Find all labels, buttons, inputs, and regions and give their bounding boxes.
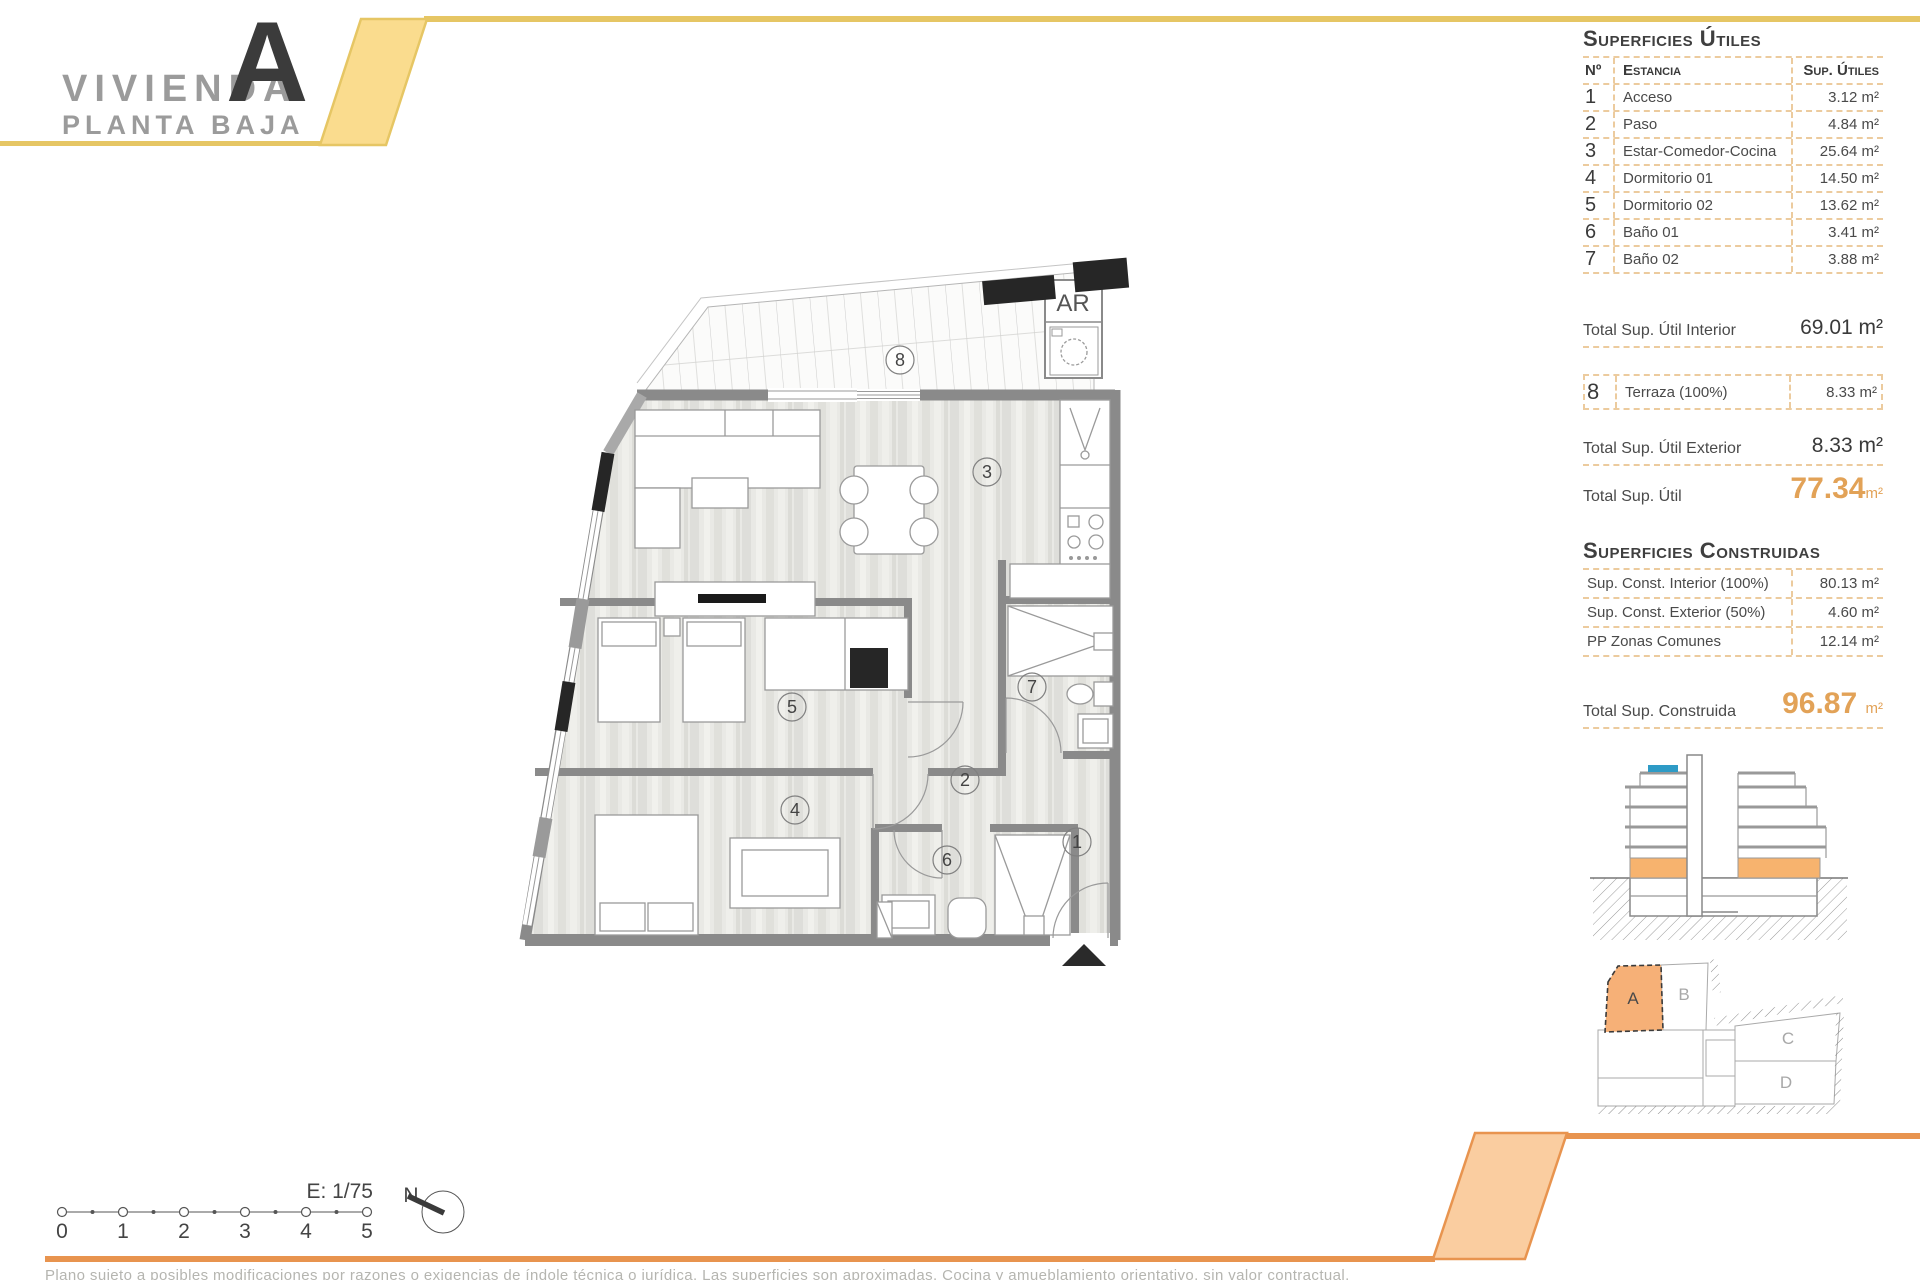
- row-room: Acceso: [1613, 85, 1791, 110]
- row-no: 8: [1585, 379, 1615, 405]
- row-area: 13.62 m²: [1791, 193, 1883, 218]
- row-room: Dormitorio 01: [1613, 166, 1791, 191]
- chair: [910, 476, 938, 504]
- sofa: [635, 410, 820, 488]
- total-construida-label: Total Sup. Construida: [1583, 703, 1736, 721]
- unit-d-label: D: [1780, 1073, 1792, 1092]
- chair: [840, 518, 868, 546]
- row-value: 12.14 m²: [1791, 628, 1883, 655]
- row-room: Paso: [1613, 112, 1791, 137]
- coffee-table: [692, 478, 748, 508]
- floor-plan: AR: [430, 250, 1140, 970]
- total-util-unit: m²: [1866, 485, 1884, 502]
- terrace-row: 8 Terraza (100%) 8.33 m²: [1583, 374, 1883, 410]
- superficies-construidas-table: Sup. Const. Interior (100%) 80.13 m² Sup…: [1583, 568, 1883, 657]
- row-no: 2: [1583, 113, 1613, 136]
- hatch-strip: [1598, 1106, 1836, 1114]
- row-label: Sup. Const. Interior (100%): [1583, 575, 1791, 592]
- sheet-subtitle: PLANTA BAJA: [62, 110, 305, 141]
- counter-nook: [1010, 564, 1110, 598]
- right-building: [1738, 773, 1826, 878]
- superficies-utiles-title: Superficies Útiles: [1583, 26, 1883, 52]
- total-interior-label: Total Sup. Útil Interior: [1583, 322, 1736, 340]
- table-row: 1 Acceso 3.12 m²: [1583, 85, 1883, 112]
- footer-right-rule: [1565, 1133, 1920, 1139]
- total-construida: Total Sup. Construida 96.87 m²: [1583, 687, 1883, 729]
- footer-parallelogram: [1433, 1133, 1567, 1259]
- table-row: 6 Baño 01 3.41 m²: [1583, 220, 1883, 247]
- row-room: Baño 01: [1613, 220, 1791, 245]
- total-exterior-value: 8.33 m²: [1812, 434, 1883, 458]
- washing-machine-icon: [1050, 327, 1098, 375]
- room-label-acceso: 1: [1072, 832, 1082, 852]
- table-row: PP Zonas Comunes 12.14 m²: [1583, 628, 1883, 655]
- hatch-strip: [1710, 959, 1721, 996]
- row-area: 3.88 m²: [1791, 247, 1883, 272]
- row-label: Sup. Const. Exterior (50%): [1583, 604, 1791, 621]
- building-section-diagram: [1590, 735, 1850, 955]
- row-room: Baño 02: [1613, 247, 1791, 272]
- highlighted-floor: [1630, 858, 1687, 878]
- total-construida-value: 96.87: [1782, 687, 1857, 720]
- row-area: 3.41 m²: [1791, 220, 1883, 245]
- row-label: PP Zonas Comunes: [1583, 633, 1791, 650]
- row-no: 1: [1583, 86, 1613, 109]
- table-row: 7 Baño 02 3.88 m²: [1583, 247, 1883, 272]
- header-bottom-rule: [0, 141, 322, 146]
- highlighted-floor: [1738, 858, 1820, 878]
- total-exterior: Total Sup. Útil Exterior 8.33 m²: [1583, 434, 1883, 466]
- total-util: Total Sup. Útil 77.34m²: [1583, 472, 1883, 512]
- room-label-bano02: 7: [1027, 677, 1037, 697]
- row-room: Dormitorio 02: [1613, 193, 1791, 218]
- unit-letter: A: [226, 6, 308, 120]
- desk-chair: [850, 648, 888, 688]
- row-value: 4.60 m²: [1791, 599, 1883, 626]
- chair: [910, 518, 938, 546]
- row-value: 80.13 m²: [1791, 570, 1883, 597]
- table-row: Sup. Const. Interior (100%) 80.13 m²: [1583, 570, 1883, 599]
- room-label-estar: 3: [982, 462, 992, 482]
- superficies-construidas-title: Superficies Construidas: [1583, 538, 1883, 564]
- left-building: [1625, 765, 1687, 878]
- col-estancia: Estancia: [1613, 58, 1791, 83]
- footer-band-graphic: [0, 1125, 1920, 1280]
- chair: [840, 476, 868, 504]
- basement: [1630, 878, 1817, 916]
- row-area: 25.64 m²: [1791, 139, 1883, 164]
- ar-label: AR: [1056, 290, 1089, 317]
- room-label-dorm01: 4: [790, 800, 800, 820]
- table-row: 2 Paso 4.84 m²: [1583, 112, 1883, 139]
- table-row: 4 Dormitorio 01 14.50 m²: [1583, 166, 1883, 193]
- total-construida-unit: m²: [1866, 700, 1884, 717]
- tv: [698, 594, 766, 603]
- total-exterior-label: Total Sup. Útil Exterior: [1583, 440, 1741, 458]
- total-interior: Total Sup. Útil Interior 69.01 m²: [1583, 316, 1883, 348]
- table-header-row: Nº Estancia Sup. Útiles: [1583, 58, 1883, 85]
- room-label-dorm02: 5: [787, 697, 797, 717]
- row-no: 5: [1583, 194, 1613, 217]
- table-row: 3 Estar-Comedor-Cocina 25.64 m²: [1583, 139, 1883, 166]
- row-room: Estar-Comedor-Cocina: [1613, 139, 1791, 164]
- row-area: 8.33 m²: [1789, 376, 1881, 408]
- row-room: Terraza (100%): [1615, 376, 1789, 408]
- pool: [1648, 765, 1678, 772]
- col-sup-utiles: Sup. Útiles: [1791, 58, 1883, 83]
- toilet: [948, 898, 986, 938]
- pillar: [1073, 258, 1129, 293]
- sofa-chaise: [635, 488, 680, 548]
- row-area: 14.50 m²: [1791, 166, 1883, 191]
- plan-sheet: VIVIENDA A PLANTA BAJA: [0, 0, 1920, 1280]
- row-no: 3: [1583, 140, 1613, 163]
- disclaimer-note: Plano sujeto a posibles modificaciones p…: [45, 1267, 1545, 1280]
- nightstand: [664, 618, 680, 636]
- total-interior-value: 69.01 m²: [1800, 316, 1883, 340]
- col-no: Nº: [1583, 62, 1613, 79]
- header-parallelogram: [320, 19, 427, 145]
- core-tower: [1687, 755, 1702, 916]
- entrance-arrow-icon: [1062, 944, 1106, 966]
- unit-c-label: C: [1782, 1029, 1794, 1048]
- table-row: Sup. Const. Exterior (50%) 4.60 m²: [1583, 599, 1883, 628]
- superficies-utiles-table: Nº Estancia Sup. Útiles 1 Acceso 3.12 m²…: [1583, 56, 1883, 274]
- row-no: 6: [1583, 221, 1613, 244]
- unit-a-label: A: [1627, 989, 1639, 1008]
- row-area: 3.12 m²: [1791, 85, 1883, 110]
- row-area: 4.84 m²: [1791, 112, 1883, 137]
- areas-panel: Superficies Útiles Nº Estancia Sup. Útil…: [1583, 26, 1883, 729]
- total-util-label: Total Sup. Útil: [1583, 488, 1682, 506]
- total-util-value: 77.34: [1790, 472, 1865, 505]
- site-key-plan: A B C D: [1588, 956, 1858, 1121]
- toilet: [1094, 682, 1113, 706]
- header-top-rule: [424, 16, 1920, 22]
- table-row: 5 Dormitorio 02 13.62 m²: [1583, 193, 1883, 220]
- room-label-paso: 2: [960, 770, 970, 790]
- room-label-terraza: 8: [895, 350, 905, 370]
- unit-b-label: B: [1678, 985, 1689, 1004]
- row-no: 7: [1583, 248, 1613, 271]
- room-label-bano01: 6: [942, 850, 952, 870]
- row-no: 4: [1583, 167, 1613, 190]
- footer-left-rule: [45, 1256, 1435, 1262]
